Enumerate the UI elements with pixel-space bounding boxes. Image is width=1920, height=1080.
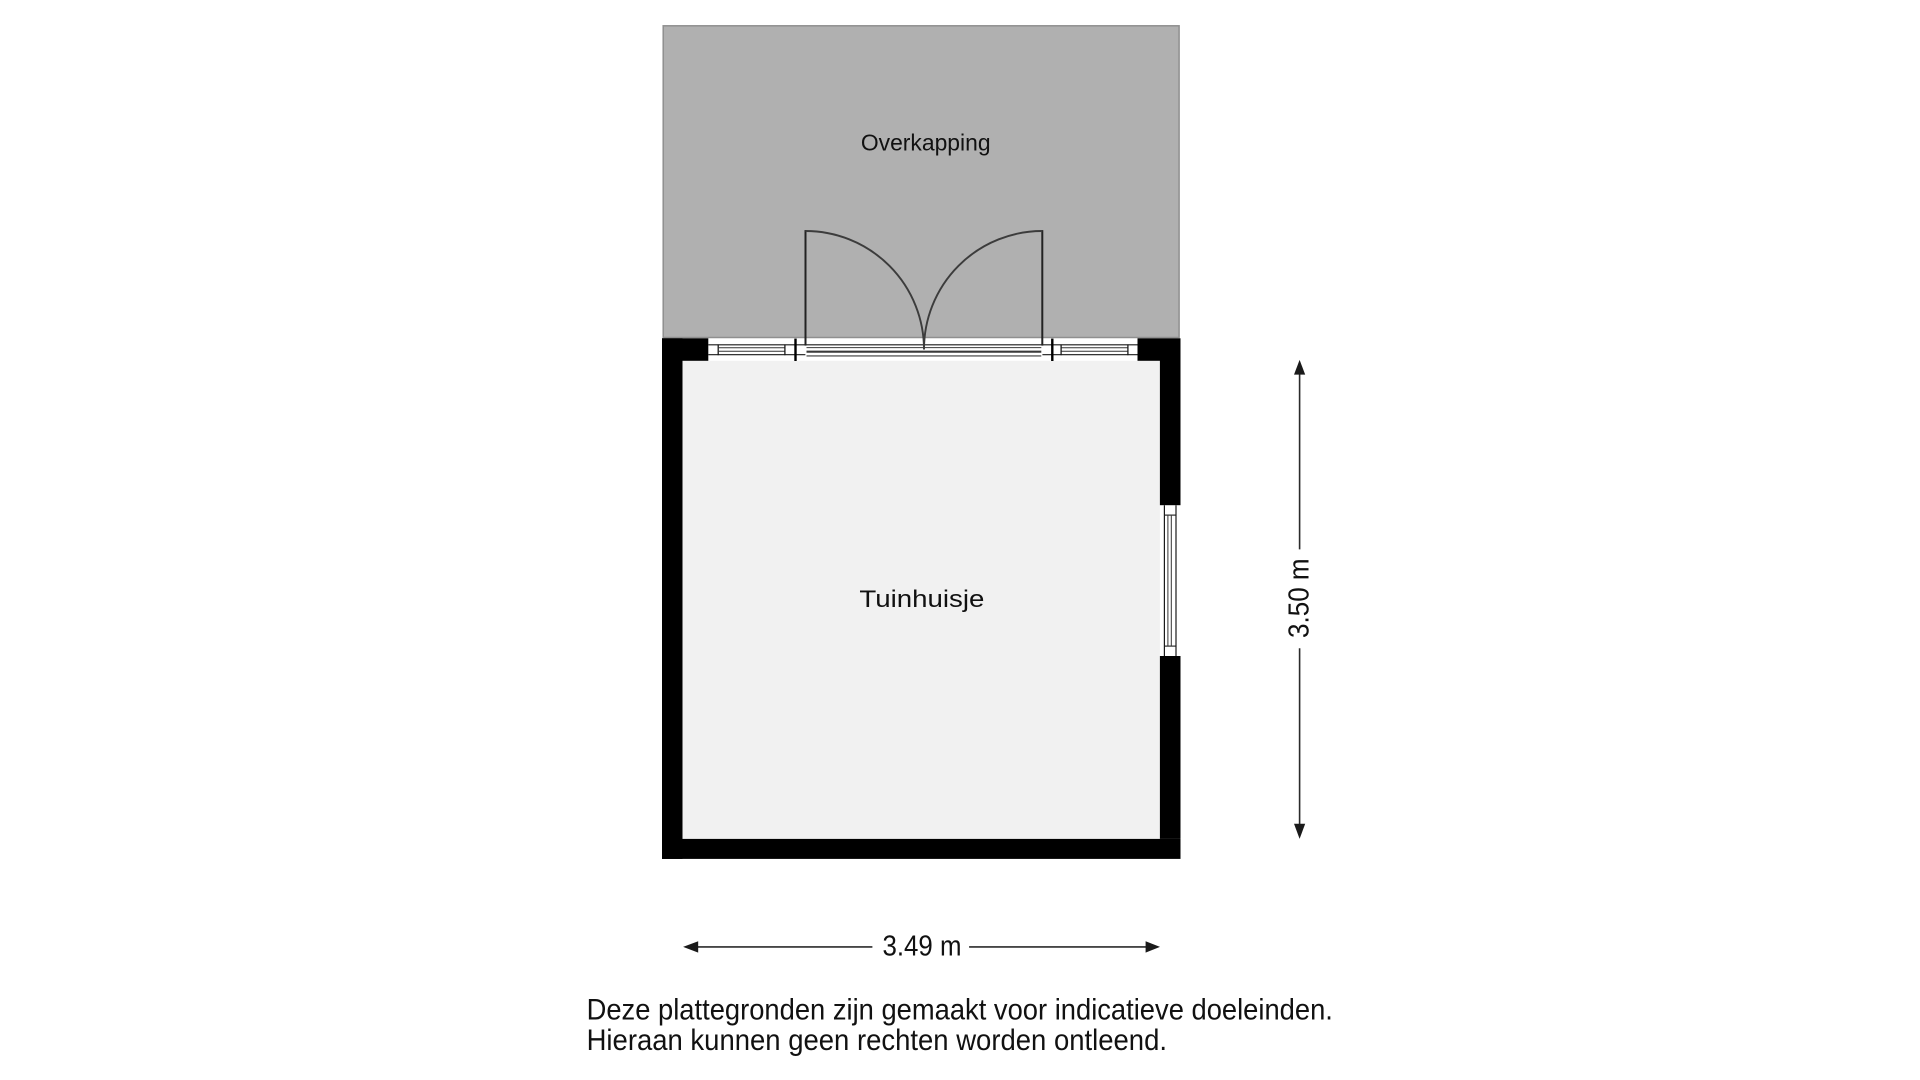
svg-text:3.49 m: 3.49 m	[883, 931, 962, 963]
svg-text:Overkapping: Overkapping	[861, 130, 991, 156]
svg-text:Tuinhuisje: Tuinhuisje	[859, 586, 984, 613]
svg-text:3.50 m: 3.50 m	[1283, 558, 1315, 638]
svg-text:Hieraan kunnen geen rechten wo: Hieraan kunnen geen rechten worden ontle…	[587, 1024, 1167, 1057]
svg-text:Deze plattegronden zijn gemaak: Deze plattegronden zijn gemaakt voor ind…	[587, 994, 1333, 1027]
